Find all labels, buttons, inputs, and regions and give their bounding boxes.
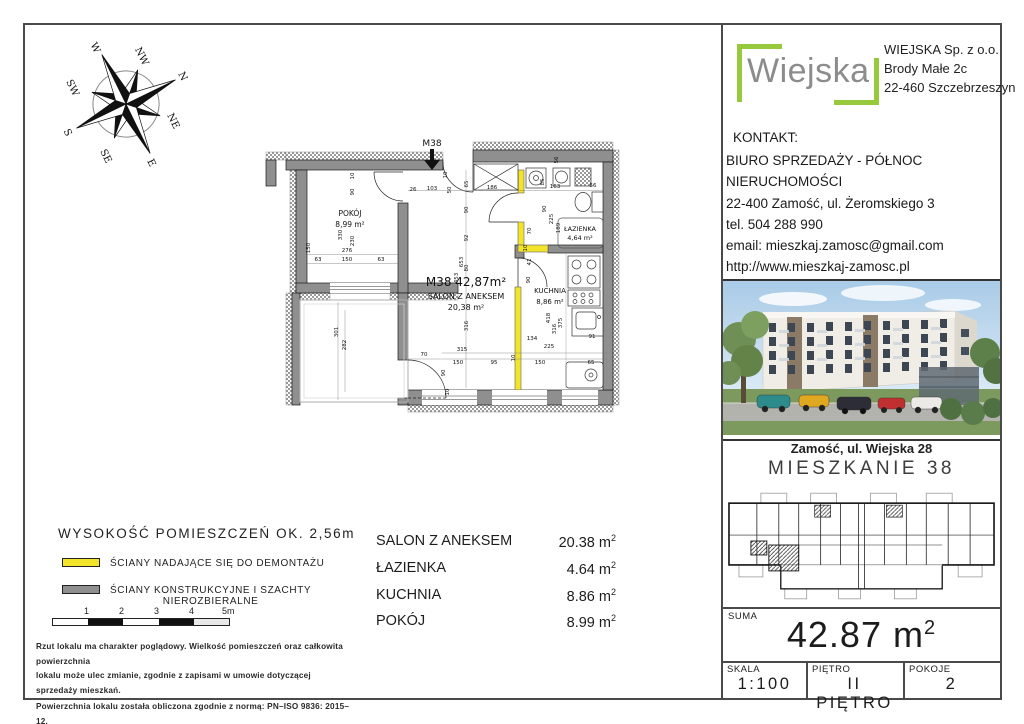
scale-tick: 4: [189, 606, 194, 616]
svg-text:316: 316: [464, 320, 470, 331]
compass-nw: NW: [132, 46, 151, 69]
svg-text:95: 95: [491, 360, 498, 366]
svg-text:63: 63: [378, 257, 385, 263]
svg-text:91: 91: [589, 334, 596, 340]
svg-text:56: 56: [554, 156, 560, 163]
svg-text:134: 134: [527, 336, 538, 342]
svg-text:70: 70: [421, 352, 428, 358]
company-address: WIEJSKA Sp. z o.o. Brody Małe 2c 22-460 …: [884, 40, 1016, 97]
svg-text:653: 653: [459, 256, 465, 267]
svg-text:63: 63: [315, 257, 322, 263]
compass-ne: NE: [164, 112, 181, 131]
pokoj-label: POKÓJ: [338, 209, 361, 218]
svg-text:90: 90: [526, 276, 532, 283]
svg-text:150: 150: [535, 360, 546, 366]
room-area-table: SALON Z ANEKSEM 20.38 m2 ŁAZIENKA 4.64 m…: [376, 533, 616, 640]
table-row: ŁAZIENKA 4.64 m2: [376, 560, 616, 578]
compass-sw: SW: [63, 78, 81, 99]
svg-text:10: 10: [350, 172, 356, 179]
svg-text:230: 230: [350, 235, 356, 246]
svg-text:M38: M38: [422, 139, 441, 149]
compass-s: S: [61, 127, 74, 138]
contact-website: http://www.mieszkaj-zamosc.pl: [726, 256, 1002, 277]
compass-w: W: [88, 41, 103, 56]
svg-text:418: 418: [546, 312, 552, 323]
contact-office: BIURO SPRZEDAŻY - PÓŁNOC NIERUCHOMOŚCI: [726, 150, 1002, 193]
svg-text:90: 90: [350, 188, 356, 195]
table-row: POKÓJ 8.99 m2: [376, 613, 616, 631]
svg-text:330: 330: [338, 229, 344, 240]
svg-text:163: 163: [550, 184, 561, 190]
svg-text:10: 10: [445, 388, 451, 395]
svg-text:150: 150: [306, 242, 312, 253]
contact-address: 22-400 Zamość, ul. Żeromskiego 3: [726, 193, 1002, 214]
lazienka-area: 4,64 m²: [567, 234, 593, 242]
building-level-plan: [723, 487, 1000, 607]
offer-sheet: N NE E SE S SW W NW: [0, 0, 1024, 724]
disclaimer-text: Rzut lokalu ma charakter poglądowy. Wiel…: [36, 640, 350, 724]
scale-bar: 1 2 3 4 5m: [52, 606, 252, 626]
contact-email: email: mieszkaj.zamosc@gmail.com: [726, 235, 1002, 256]
pokoj-area: 8,99 m²: [335, 220, 364, 229]
compass-n: N: [175, 70, 189, 83]
compass-se: SE: [97, 148, 113, 166]
ceiling-height-note: WYSOKOŚĆ POMIESZCZEŃ OK. 2,56m: [58, 526, 355, 541]
svg-text:65: 65: [588, 360, 595, 366]
svg-text:41: 41: [527, 259, 533, 266]
toilet-symbol: [575, 192, 603, 212]
svg-text:10: 10: [523, 244, 529, 251]
svg-text:10: 10: [511, 354, 517, 361]
building-photo: [723, 279, 1000, 441]
total-area-value: 42.87 m2: [723, 614, 1000, 656]
svg-text:65: 65: [464, 180, 470, 187]
compass-e: E: [144, 157, 157, 168]
scale-tick: 3: [154, 606, 159, 616]
legend-structural: ŚCIANY KONSTRUKCYJNE I SZACHTY NIEROZBIE…: [62, 585, 311, 607]
photo-caption: Zamość, ul. Wiejska 28: [723, 441, 1000, 456]
lazienka-label: ŁAZIENKA: [563, 225, 597, 233]
balcony-outline: [300, 300, 408, 402]
contact-phone: tel. 504 288 990: [726, 214, 1002, 235]
svg-text:282: 282: [342, 340, 348, 351]
svg-text:70: 70: [527, 227, 533, 234]
svg-text:189: 189: [556, 222, 562, 233]
compass-rose: N NE E SE S SW W NW: [48, 26, 204, 182]
unit-heading: MIESZKANIE 38: [723, 458, 1000, 480]
kuchnia-area: 8,86 m²: [536, 298, 564, 306]
svg-text:150: 150: [453, 360, 464, 366]
scale-tick: 5m: [222, 606, 235, 616]
svg-text:85: 85: [540, 178, 546, 185]
rooms-value: 2: [905, 675, 998, 694]
scale-cell: SKALA 1:100: [723, 663, 806, 698]
contact-block: BIURO SPRZEDAŻY - PÓŁNOC NIERUCHOMOŚCI 2…: [726, 150, 1002, 278]
unit-area-label: M38 42,87m²: [426, 275, 506, 289]
kuchnia-label: KUCHNIA: [534, 287, 566, 295]
svg-text:56: 56: [590, 183, 597, 189]
floor-cell: PIĘTRO II PIĘTRO: [808, 663, 901, 698]
scale-tick: 1: [84, 606, 89, 616]
rooms-cell: POKOJE 2: [905, 663, 998, 698]
svg-text:26: 26: [410, 187, 417, 193]
table-row: KUCHNIA 8.86 m2: [376, 587, 616, 605]
svg-text:90: 90: [542, 205, 548, 212]
summary-divider: [721, 607, 1000, 609]
scale-value: 1:100: [723, 675, 806, 694]
svg-text:315: 315: [457, 347, 468, 353]
stove-symbol: [568, 256, 600, 288]
demountable-swatch: [62, 558, 100, 567]
svg-text:375: 375: [558, 317, 564, 328]
svg-text:50: 50: [447, 186, 453, 193]
demountable-label: ŚCIANY NADAJĄCE SIĘ DO DEMONTAŻU: [110, 558, 324, 569]
structural-label: ŚCIANY KONSTRUKCYJNE I SZACHTY NIEROZBIE…: [110, 585, 311, 607]
sink-symbol: [572, 308, 603, 336]
svg-text:276: 276: [342, 248, 353, 254]
legend-demountable: ŚCIANY NADAJĄCE SIĘ DO DEMONTAŻU: [62, 558, 324, 569]
svg-text:150: 150: [342, 257, 353, 263]
svg-text:90: 90: [441, 369, 447, 376]
floor-plan: M38 POKÓJ 8,99 m² M38 42,87m² SALON Z AN…: [262, 130, 622, 420]
scale-tick: 2: [119, 606, 124, 616]
svg-text:453: 453: [454, 272, 460, 283]
structural-swatch: [62, 585, 100, 594]
fridge-symbol: [566, 362, 603, 388]
svg-text:186: 186: [487, 185, 498, 191]
svg-text:225: 225: [549, 213, 555, 224]
oven-symbol: [568, 290, 600, 306]
floor-value: II PIĘTRO: [808, 675, 901, 713]
svg-text:225: 225: [544, 344, 555, 350]
contact-heading: KONTAKT:: [733, 130, 798, 145]
salon-label: SALON Z ANEKSEM: [428, 292, 505, 301]
svg-text:103: 103: [427, 186, 438, 192]
svg-text:92: 92: [464, 235, 470, 242]
svg-text:10: 10: [443, 171, 449, 178]
company-logo: Wiejska: [747, 52, 870, 91]
svg-text:301: 301: [334, 327, 340, 338]
bathtub-symbol: [558, 218, 603, 248]
salon-area: 20,38 m²: [448, 303, 484, 312]
svg-text:90: 90: [464, 206, 470, 213]
table-row: SALON Z ANEKSEM 20.38 m2: [376, 533, 616, 551]
